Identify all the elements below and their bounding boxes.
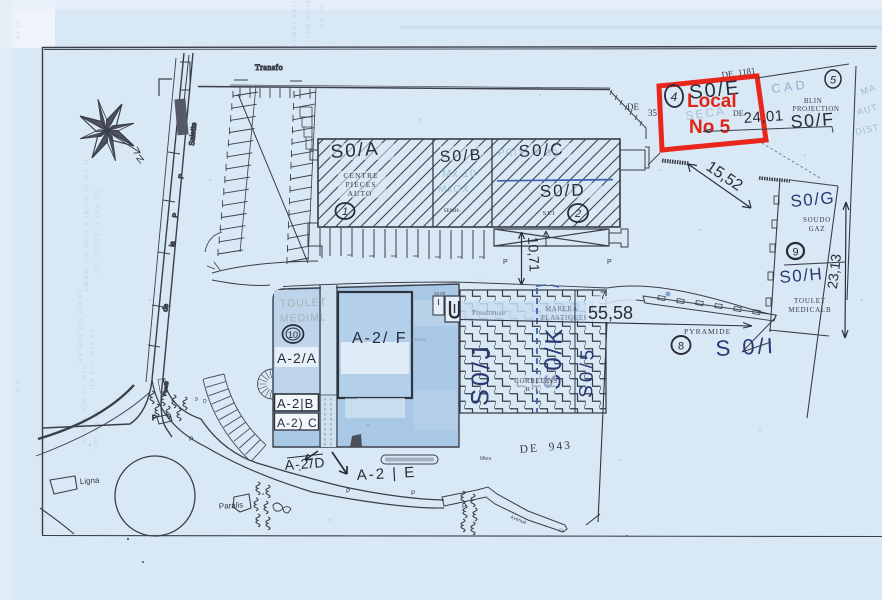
svg-text:A-2/D: A-2/D [284,454,326,473]
svg-text:A-2/A: A-2/A [277,350,317,366]
svg-text:2: 2 [574,208,581,220]
svg-text:8: 8 [678,341,684,353]
svg-text:PIECES: PIECES [345,180,376,189]
svg-text:CENTRE: CENTRE [343,171,378,180]
svg-text:10: 10 [288,330,298,340]
svg-text:ts erm nia etr: ts erm nia etr [88,330,95,392]
svg-text:Poudreuse: Poudreuse [472,309,506,317]
svg-text:SOUDO: SOUDO [803,216,831,224]
svg-text:TOULET: TOULET [280,296,328,310]
svg-text:S0/F: S0/F [790,109,835,132]
svg-text:nt ie: nt ie [14,20,21,41]
svg-text:S0/J: S0/J [466,343,496,406]
svg-text:it sn ut mrtei s nrat eti mems: it sn ut mrtei s nrat eti mems [82,160,89,293]
svg-text:itne remst: itne remst [290,2,297,48]
svg-text:7: 7 [600,290,606,302]
svg-text:P: P [152,415,157,422]
svg-text:BLIN: BLIN [804,97,822,105]
svg-text:MEDICALB: MEDICALB [789,306,832,314]
svg-text:rn eit sta lrm en: rn eit sta lrm en [76,290,83,364]
svg-text:5: 5 [830,75,837,87]
svg-text:S0/H: S0/H [779,264,824,287]
svg-text:Transfo: Transfo [255,63,283,72]
svg-text:S0/B: S0/B [439,147,483,166]
svg-text:AUTO: AUTO [348,189,373,198]
svg-text:e s: e s [14,380,21,394]
svg-text:D: D [203,399,207,405]
svg-text:A-2) C: A-2) C [277,416,318,430]
svg-text:P: P [462,503,466,510]
svg-text:mr es: mr es [318,4,325,29]
svg-text:SEI: SEI [543,210,556,217]
svg-text:Paralis: Paralis [219,500,244,511]
svg-text:DE: DE [627,102,639,112]
svg-text:de: de [162,303,170,312]
svg-text:A-2 | E: A-2 | E [356,464,416,484]
svg-text:PLASTIQUES: PLASTIQUES [541,314,588,322]
svg-text:nse irt mle san rt: nse irt mle san rt [80,365,87,444]
svg-text:MARERA: MARERA [545,305,578,313]
svg-text:9: 9 [792,247,798,259]
svg-text:P: P [411,490,415,497]
svg-text:SEMH-: SEMH- [443,208,460,214]
svg-text:S 0/I: S 0/I [715,333,776,361]
svg-text:4: 4 [671,90,678,104]
svg-text:35: 35 [648,108,658,118]
svg-text:Mx 10: Mx 10 [442,168,477,180]
svg-text:P: P [346,488,350,495]
svg-text:lts nei rt eatsn imr: lts nei rt eatsn imr [93,190,100,275]
svg-text:MxOX: MxOX [438,184,470,195]
svg-text:10,71: 10,71 [525,236,543,272]
svg-text:P: P [607,259,612,266]
svg-text:1: 1 [342,206,348,218]
svg-text:GAZ: GAZ [809,225,826,233]
svg-text:55,58: 55,58 [588,303,633,323]
svg-text:S0/D: S0/D [539,180,585,201]
svg-text:A-2|B: A-2|B [277,396,314,411]
svg-text:P: P [189,436,193,443]
svg-text:R+1: R+1 [526,386,539,393]
svg-text:S0/A: S0/A [330,139,381,163]
svg-text:TOULET: TOULET [794,297,826,305]
svg-text:MEDIML: MEDIML [280,311,327,325]
svg-text:A-2/ F: A-2/ F [352,330,408,347]
svg-text:Ligna: Ligna [80,476,101,486]
svg-text:CORBELINS: CORBELINS [514,377,557,385]
svg-text:PRIX--X 30: PRIX--X 30 [498,148,559,159]
svg-text:S0/5: S0/5 [576,346,599,398]
svg-text:Alterior: Alterior [412,337,427,342]
svg-text:9: 9 [195,397,198,403]
svg-text:srtie mln: srtie mln [304,0,311,40]
svg-text:P: P [503,259,508,266]
svg-text:Mtea: Mtea [480,456,491,462]
svg-text:34 00: 34 00 [434,291,446,296]
svg-text:24,01: 24,01 [743,107,784,127]
svg-text:S0/G: S0/G [790,188,836,211]
